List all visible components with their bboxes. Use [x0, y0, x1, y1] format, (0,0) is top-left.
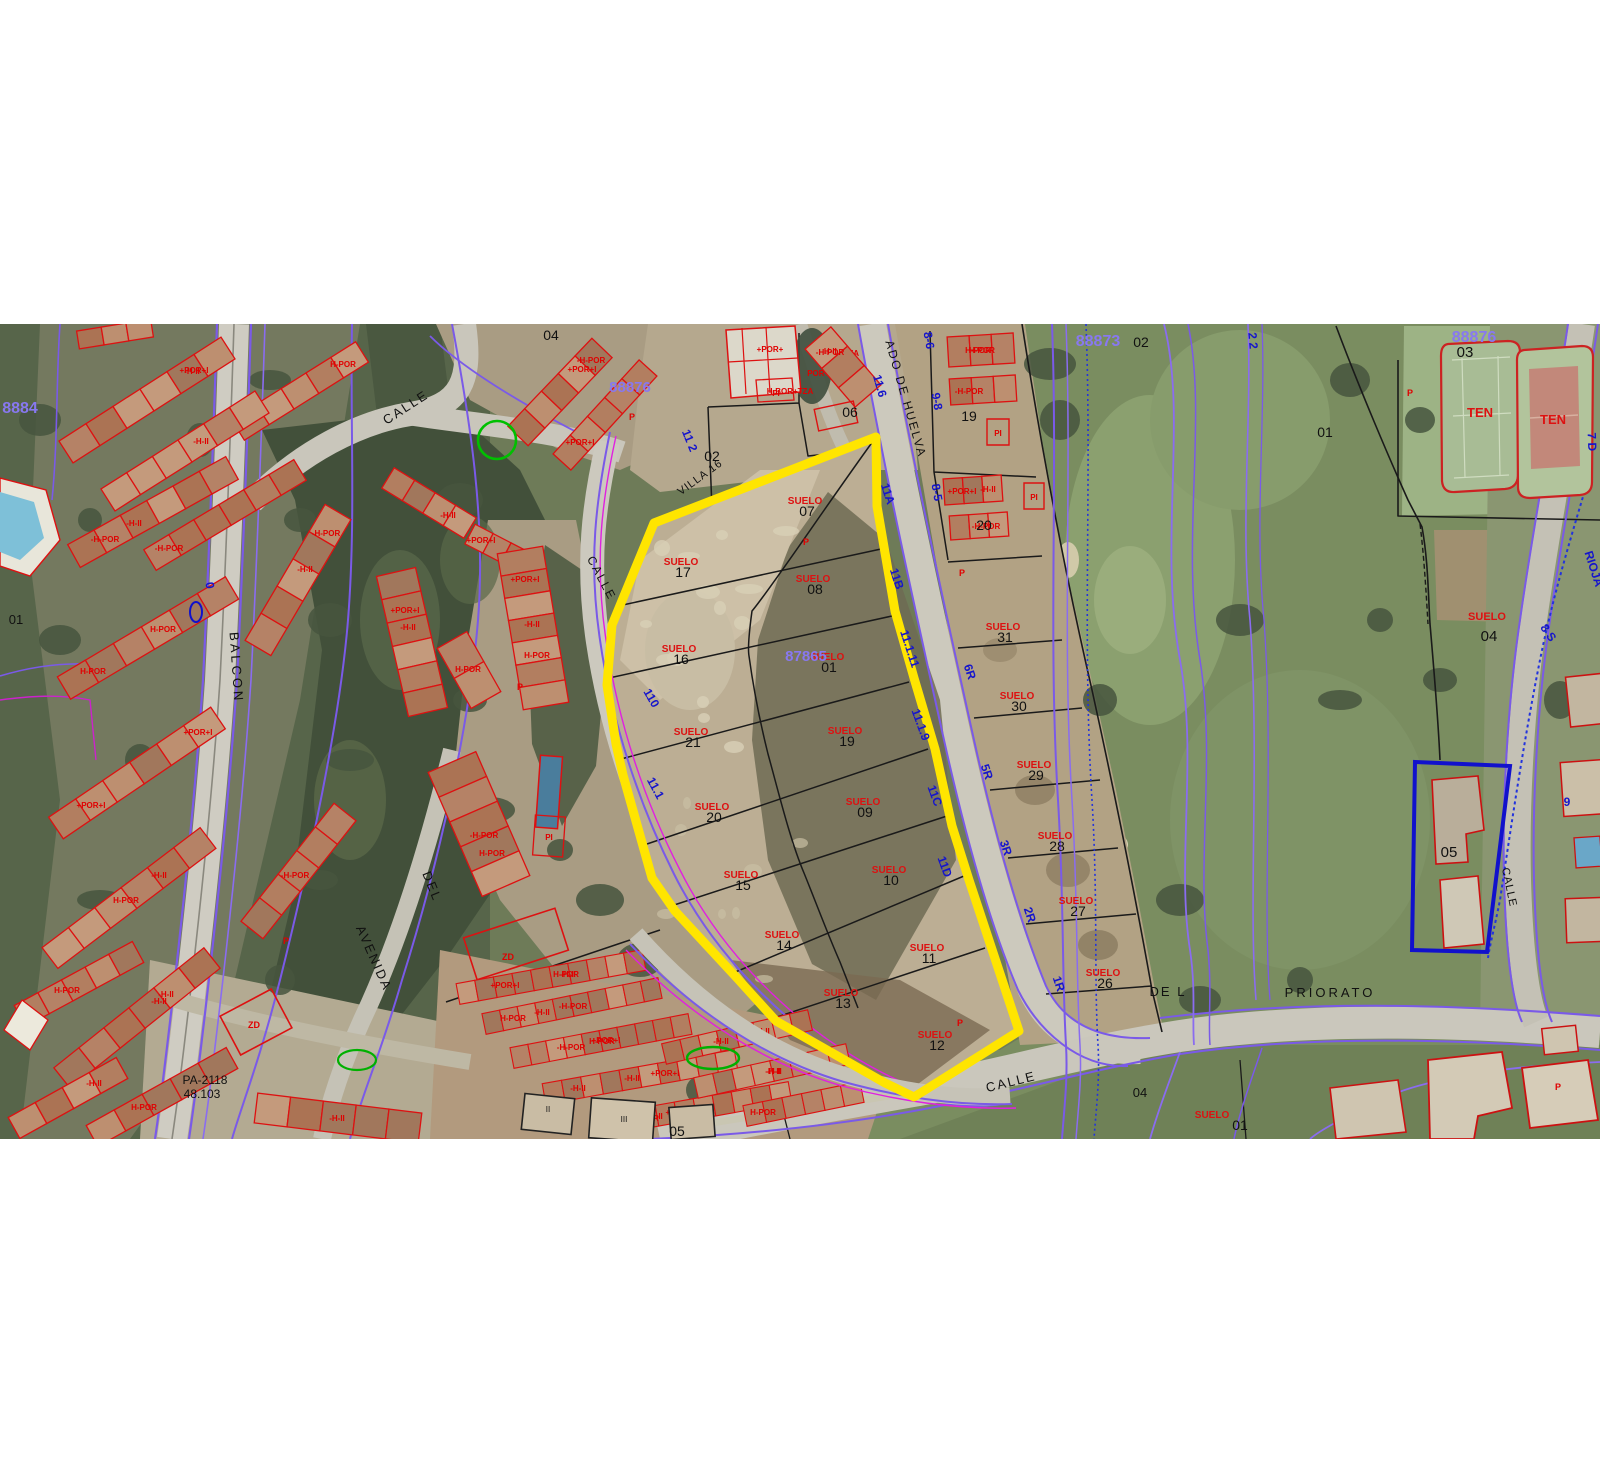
svg-text:88873: 88873: [1076, 333, 1121, 350]
svg-text:21: 21: [685, 734, 701, 750]
svg-text:05: 05: [669, 1123, 685, 1139]
svg-text:PI: PI: [545, 833, 553, 842]
svg-text:PA-2118: PA-2118: [183, 1073, 228, 1087]
svg-text:17: 17: [675, 564, 691, 580]
svg-text:P: P: [1407, 388, 1413, 398]
svg-text:SUELO: SUELO: [1468, 611, 1506, 623]
svg-text:06: 06: [842, 404, 858, 420]
svg-text:01: 01: [1317, 424, 1333, 440]
svg-text:-H-II: -H-II: [329, 1114, 345, 1123]
svg-text:H-POR: H-POR: [131, 1103, 157, 1112]
svg-text:-H-POR: -H-POR: [955, 387, 984, 396]
svg-text:10: 10: [883, 872, 899, 888]
svg-text:13: 13: [835, 995, 851, 1011]
svg-text:H-POR: H-POR: [965, 346, 991, 355]
svg-text:05: 05: [1441, 844, 1458, 861]
svg-text:29: 29: [1028, 767, 1044, 783]
svg-text:-H-II: -H-II: [440, 511, 456, 520]
svg-text:-H-II: -H-II: [524, 620, 540, 629]
svg-text:H-POR: H-POR: [500, 1014, 526, 1023]
svg-text:+POR+I: +POR+I: [467, 536, 496, 545]
svg-text:-H-II: -H-II: [86, 1079, 102, 1088]
svg-text:-H-POR: -H-POR: [312, 529, 341, 538]
svg-text:-H-II: -H-II: [570, 1084, 586, 1093]
svg-text:H-POR: H-POR: [54, 986, 80, 995]
svg-text:-H-POR: -H-POR: [559, 1002, 588, 1011]
svg-text:+POR+I: +POR+I: [568, 365, 597, 374]
svg-text:30: 30: [1011, 698, 1027, 714]
svg-text:-H-POR: -H-POR: [470, 831, 499, 840]
svg-text:02: 02: [1133, 334, 1149, 350]
svg-text:P: P: [803, 537, 809, 547]
svg-text:-H-II: -H-II: [158, 990, 174, 999]
svg-text:04: 04: [543, 327, 559, 343]
svg-text:-H-POR: -H-POR: [91, 535, 120, 544]
svg-text:-H-II: -H-II: [184, 367, 200, 376]
svg-text:07: 07: [799, 503, 815, 519]
svg-text:01: 01: [9, 612, 23, 627]
svg-text:H-POR: H-POR: [479, 849, 505, 858]
svg-text:-H-II: -H-II: [193, 437, 209, 446]
svg-text:III: III: [621, 1115, 628, 1124]
svg-text:TEN: TEN: [1467, 405, 1493, 420]
svg-text:+POR+I: +POR+I: [511, 575, 540, 584]
svg-text:-H-II: -H-II: [151, 871, 167, 880]
svg-text:88876: 88876: [1452, 329, 1497, 346]
svg-text:88876: 88876: [609, 379, 651, 396]
svg-text:II: II: [546, 1105, 550, 1114]
svg-text:H-POR: H-POR: [80, 667, 106, 676]
svg-text:DE L: DE L: [1150, 984, 1187, 999]
svg-text:8884: 8884: [2, 400, 38, 417]
svg-text:-H-POR: -H-POR: [155, 544, 184, 553]
svg-text:2 2: 2 2: [1245, 332, 1260, 350]
svg-text:P: P: [1555, 1082, 1561, 1092]
svg-text:+POR+I: +POR+I: [391, 606, 420, 615]
svg-text:16: 16: [673, 651, 689, 667]
svg-text:H-POR: H-POR: [589, 1037, 615, 1046]
svg-text:-H-II: -H-II: [400, 623, 416, 632]
svg-text:26: 26: [1097, 975, 1113, 991]
svg-text:H-POR: H-POR: [455, 665, 481, 674]
svg-text:ZD: ZD: [248, 1020, 260, 1030]
svg-text:20: 20: [706, 809, 722, 825]
svg-text:+POR+I: +POR+I: [566, 438, 595, 447]
svg-text:PRIORATO: PRIORATO: [1285, 985, 1376, 1000]
svg-text:H-POR: H-POR: [150, 625, 176, 634]
svg-text:7 D: 7 D: [1585, 432, 1600, 451]
svg-text:P: P: [283, 936, 289, 946]
svg-text:-H-II: -H-II: [624, 1074, 640, 1083]
svg-text:9: 9: [1564, 795, 1571, 809]
svg-text:19: 19: [839, 733, 855, 749]
svg-text:09: 09: [857, 804, 873, 820]
svg-text:+POR+I: +POR+I: [77, 801, 106, 810]
svg-text:01: 01: [1232, 1117, 1248, 1133]
svg-text:TEN: TEN: [1540, 412, 1566, 427]
svg-text:+POR+I: +POR+I: [948, 487, 977, 496]
svg-text:-H-POR: -H-POR: [281, 871, 310, 880]
svg-text:28: 28: [1049, 838, 1065, 854]
svg-text:H-POR: H-POR: [524, 651, 550, 660]
svg-text:-H-II: -H-II: [534, 1008, 550, 1017]
svg-text:PI: PI: [1030, 493, 1038, 502]
svg-text:-H-II: -H-II: [126, 519, 142, 528]
svg-text:19: 19: [961, 408, 977, 424]
svg-text:+POR+I: +POR+I: [491, 981, 520, 990]
svg-text:+POR+I: +POR+I: [651, 1069, 680, 1078]
svg-text:12: 12: [929, 1037, 945, 1053]
svg-text:H-BOR+TZA: H-BOR+TZA: [767, 387, 814, 396]
svg-text:04: 04: [1481, 628, 1498, 645]
svg-text:04: 04: [1133, 1085, 1147, 1100]
svg-text:15: 15: [735, 877, 751, 893]
svg-text:-H-II: -H-II: [560, 970, 576, 979]
svg-text:-H-II: -H-II: [821, 347, 837, 356]
svg-text:20: 20: [976, 517, 992, 533]
svg-text:-H-POR: -H-POR: [577, 356, 606, 365]
svg-text:11: 11: [922, 950, 937, 966]
svg-text:14: 14: [776, 937, 792, 953]
svg-text:87865: 87865: [785, 648, 827, 665]
svg-text:P: P: [629, 412, 635, 422]
svg-text:H-POR: H-POR: [330, 360, 356, 369]
svg-text:P: P: [517, 682, 523, 692]
svg-text:27: 27: [1070, 903, 1086, 919]
svg-text:-H-POR: -H-POR: [557, 1043, 586, 1052]
svg-text:-H-II: -H-II: [980, 485, 996, 494]
svg-text:H-POR: H-POR: [750, 1108, 776, 1117]
svg-text:+POR+I: +POR+I: [184, 728, 213, 737]
svg-text:SUELO: SUELO: [1195, 1110, 1230, 1121]
svg-text:+POR+: +POR+: [757, 345, 784, 354]
svg-text:-H-II: -H-II: [765, 1067, 781, 1076]
svg-text:48.103: 48.103: [184, 1087, 221, 1101]
svg-text:-H-II: -H-II: [297, 565, 313, 574]
svg-text:H-POR: H-POR: [113, 896, 139, 905]
svg-text:-H-II: -H-II: [713, 1037, 729, 1046]
svg-text:PI: PI: [994, 429, 1002, 438]
svg-text:P: P: [957, 1018, 963, 1028]
svg-text:ZD: ZD: [502, 952, 514, 962]
svg-text:08: 08: [807, 581, 823, 597]
svg-text:03: 03: [1457, 344, 1474, 361]
svg-text:P: P: [959, 568, 965, 578]
svg-text:31: 31: [997, 629, 1013, 645]
